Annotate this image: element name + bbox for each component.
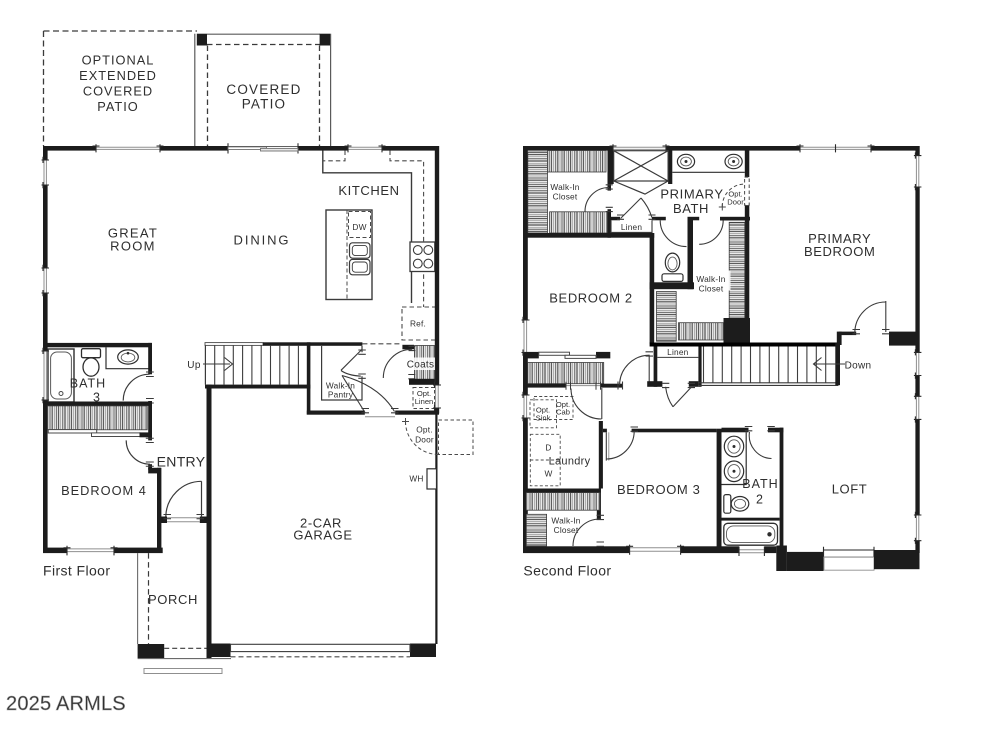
svg-text:DINING: DINING bbox=[234, 233, 291, 248]
svg-text:Linen: Linen bbox=[667, 347, 688, 357]
svg-text:Door: Door bbox=[415, 435, 434, 445]
svg-text:Door: Door bbox=[727, 198, 744, 207]
svg-text:Walk-In: Walk-In bbox=[696, 274, 725, 284]
svg-text:Closet: Closet bbox=[554, 525, 579, 535]
svg-text:Pantry: Pantry bbox=[328, 390, 354, 400]
svg-text:BEDROOM: BEDROOM bbox=[804, 244, 875, 259]
svg-text:D: D bbox=[545, 443, 551, 453]
svg-text:Up: Up bbox=[187, 360, 201, 371]
svg-text:Laundry: Laundry bbox=[549, 456, 591, 468]
svg-text:EXTENDED: EXTENDED bbox=[79, 68, 157, 83]
svg-text:ENTRY: ENTRY bbox=[157, 454, 206, 470]
svg-text:BATH: BATH bbox=[742, 477, 778, 491]
svg-text:GARAGE: GARAGE bbox=[293, 528, 352, 543]
svg-text:ROOM: ROOM bbox=[110, 239, 156, 254]
svg-text:PRIMARY: PRIMARY bbox=[660, 187, 723, 202]
svg-text:Linen: Linen bbox=[415, 397, 434, 406]
svg-text:2: 2 bbox=[756, 493, 764, 507]
svg-text:Ref.: Ref. bbox=[410, 319, 426, 329]
svg-text:Sink: Sink bbox=[536, 414, 551, 423]
svg-text:Closet: Closet bbox=[553, 192, 578, 202]
svg-text:LOFT: LOFT bbox=[832, 482, 868, 497]
svg-text:BEDROOM 3: BEDROOM 3 bbox=[617, 482, 700, 497]
svg-text:BEDROOM 2: BEDROOM 2 bbox=[549, 291, 632, 306]
svg-text:COVERED: COVERED bbox=[83, 84, 153, 99]
svg-text:COVERED: COVERED bbox=[226, 82, 301, 97]
svg-text:PATIO: PATIO bbox=[97, 99, 139, 114]
svg-text:DW: DW bbox=[352, 222, 366, 232]
svg-text:BATH: BATH bbox=[70, 377, 106, 391]
svg-text:KITCHEN: KITCHEN bbox=[338, 183, 399, 198]
svg-text:Walk-In: Walk-In bbox=[551, 516, 580, 526]
svg-text:PORCH: PORCH bbox=[148, 592, 198, 607]
svg-text:Cab: Cab bbox=[556, 408, 570, 417]
svg-text:PATIO: PATIO bbox=[242, 97, 287, 112]
svg-text:BEDROOM 4: BEDROOM 4 bbox=[61, 483, 147, 498]
svg-text:OPTIONAL: OPTIONAL bbox=[82, 53, 155, 68]
svg-text:Walk-In: Walk-In bbox=[550, 182, 579, 192]
svg-text:Second Floor: Second Floor bbox=[523, 563, 611, 579]
svg-text:WH: WH bbox=[409, 474, 423, 484]
svg-text:Linen: Linen bbox=[621, 222, 642, 232]
svg-text:BATH: BATH bbox=[673, 201, 709, 216]
svg-text:Down: Down bbox=[845, 360, 872, 371]
svg-text:W: W bbox=[544, 469, 552, 479]
svg-text:Opt.: Opt. bbox=[416, 425, 432, 435]
svg-text:2025 ARMLS: 2025 ARMLS bbox=[6, 693, 126, 715]
svg-text:Coats: Coats bbox=[407, 360, 435, 371]
svg-text:Closet: Closet bbox=[699, 284, 724, 294]
svg-text:First Floor: First Floor bbox=[43, 563, 110, 579]
